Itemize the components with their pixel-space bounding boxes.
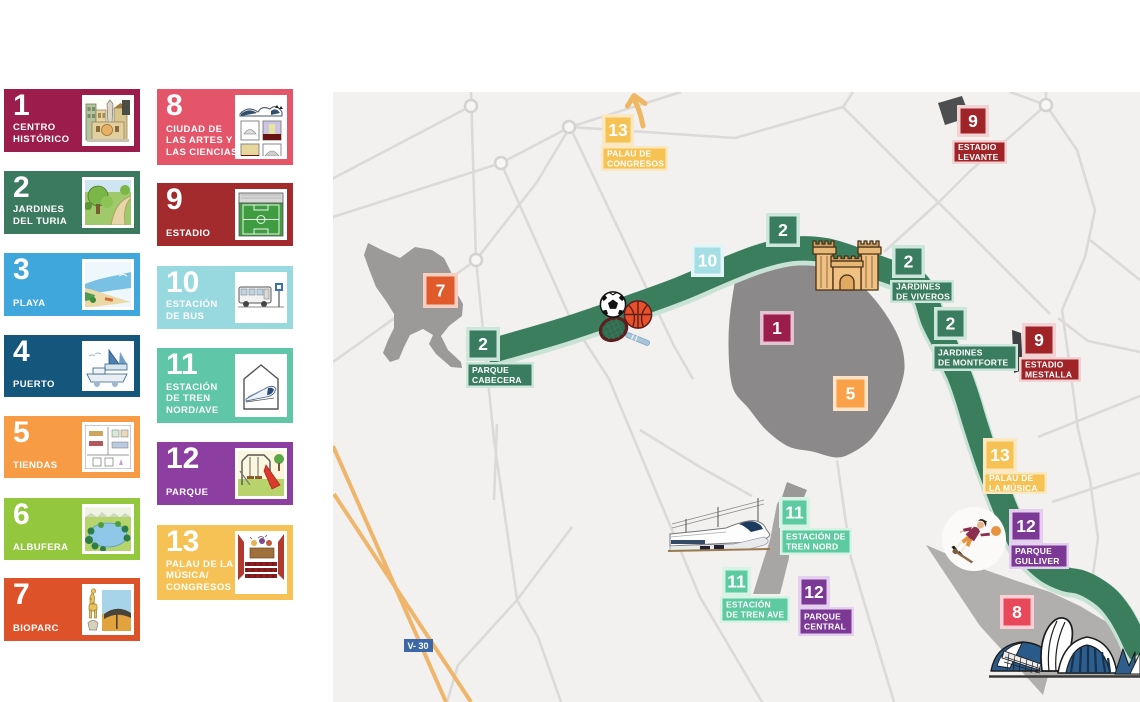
svg-text:PARQUE: PARQUE [472, 365, 509, 375]
svg-text:2: 2 [946, 314, 956, 334]
svg-text:2: 2 [904, 252, 914, 272]
svg-text:10: 10 [698, 251, 718, 271]
svg-text:2: 2 [778, 220, 788, 240]
svg-text:GULLIVER: GULLIVER [1015, 556, 1060, 566]
svg-text:LA MÚSICA: LA MÚSICA [989, 482, 1038, 493]
svg-text:8: 8 [1012, 602, 1022, 622]
svg-text:DE TREN AVE: DE TREN AVE [726, 609, 785, 619]
svg-text:2: 2 [478, 334, 488, 354]
svg-text:PARQUE: PARQUE [804, 612, 841, 622]
svg-text:V- 30: V- 30 [407, 641, 428, 651]
svg-text:CENTRAL: CENTRAL [804, 621, 846, 631]
svg-text:LEVANTE: LEVANTE [958, 152, 999, 162]
svg-text:9: 9 [1034, 330, 1044, 350]
svg-text:11: 11 [727, 572, 746, 592]
svg-text:ESTACIÓN: ESTACIÓN [726, 599, 771, 610]
svg-text:12: 12 [804, 582, 824, 602]
svg-text:JARDINES: JARDINES [938, 348, 983, 358]
svg-text:5: 5 [846, 384, 856, 404]
svg-text:13: 13 [990, 445, 1010, 465]
svg-text:CABECERA: CABECERA [472, 375, 522, 385]
svg-text:9: 9 [968, 111, 978, 131]
svg-text:ESTADIO: ESTADIO [1025, 360, 1064, 370]
svg-text:1: 1 [772, 318, 782, 338]
svg-text:DE MONTFORTE: DE MONTFORTE [938, 357, 1009, 367]
svg-text:TREN NORD: TREN NORD [786, 541, 838, 551]
svg-text:PARQUE: PARQUE [1015, 546, 1052, 556]
svg-text:MESTALLA: MESTALLA [1025, 369, 1072, 379]
svg-text:DE VIVEROS: DE VIVEROS [896, 291, 950, 301]
svg-text:JARDINES: JARDINES [896, 282, 941, 292]
svg-text:11: 11 [785, 503, 804, 523]
svg-text:12: 12 [1016, 516, 1036, 536]
svg-text:ESTACIÓN DE: ESTACIÓN DE [786, 531, 846, 542]
svg-text:ESTADIO: ESTADIO [958, 142, 997, 152]
svg-text:PALAU DE: PALAU DE [989, 473, 1034, 483]
svg-text:13: 13 [608, 120, 628, 140]
svg-text:7: 7 [436, 281, 446, 301]
svg-text:PALAU DE: PALAU DE [607, 149, 652, 159]
svg-text:CONGRESOS: CONGRESOS [607, 158, 664, 168]
